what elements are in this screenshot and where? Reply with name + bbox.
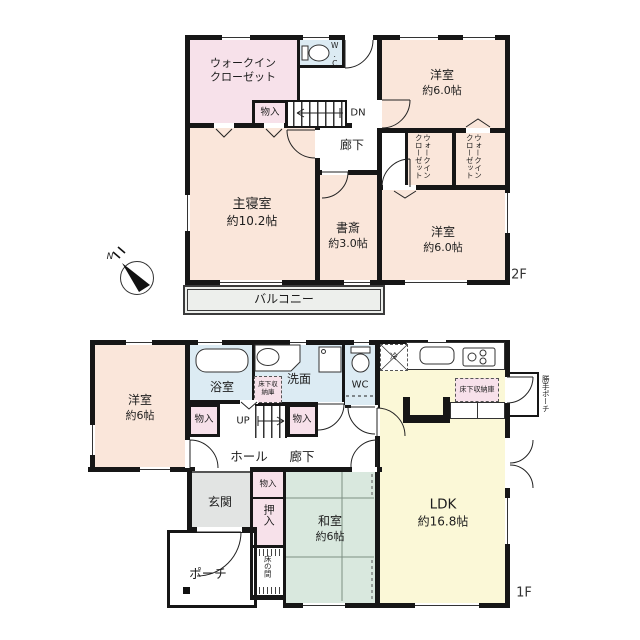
underfloor-storage-label-ldk: 床下収納庫 xyxy=(460,385,495,394)
door-opening xyxy=(352,467,377,472)
window xyxy=(185,195,190,231)
room-label-wc-2f: W.C xyxy=(330,41,338,65)
room-label-senmen-1f: 洗面 xyxy=(287,372,311,388)
room-label-ldk: LDK 約16.8帖 xyxy=(418,496,469,529)
door-arc xyxy=(318,404,344,430)
room-label-walkin-closet-2f: ウォークイン クローゼット xyxy=(210,57,276,86)
kitchen-counter xyxy=(406,342,505,370)
window xyxy=(400,35,438,40)
door-opening xyxy=(377,100,382,128)
kitchen-island-wall xyxy=(403,397,410,423)
door-arc xyxy=(348,407,375,434)
compass-north-label: N xyxy=(107,252,114,264)
room-wc-1f xyxy=(345,345,375,405)
closet-label-monoiri-2f: 物入 xyxy=(260,107,279,119)
window xyxy=(222,35,250,40)
room-label-wic2-2f: ウォークイン クローゼット xyxy=(465,134,482,186)
door-opening xyxy=(264,123,284,128)
kitchen-porch-label: 勝手ポーチ xyxy=(541,375,549,419)
room-label-wc-1f: WC xyxy=(352,379,369,392)
door-opening xyxy=(394,185,416,190)
casement-window-icon xyxy=(510,465,533,488)
room-label-genkan: 玄関 xyxy=(208,495,232,511)
closet-label-monoiri-west: 物入 xyxy=(194,414,213,426)
wall xyxy=(405,128,408,185)
room-label-shosai-2f: 書斎 約3.0帖 xyxy=(328,221,368,251)
wall xyxy=(185,35,190,285)
door-opening xyxy=(197,527,242,532)
window xyxy=(290,340,306,345)
room-label-yoshitsu-south-2f: 洋室 約6.0帖 xyxy=(423,225,463,255)
window xyxy=(354,340,369,345)
closet-label-monoiri-south: 物入 xyxy=(259,479,276,490)
wall xyxy=(342,345,345,405)
room-label-wic1-2f: ウォークイン クローゼット xyxy=(414,134,431,186)
door-opening xyxy=(240,400,258,404)
door-opening xyxy=(185,440,190,468)
genkan-step-line xyxy=(192,471,250,473)
tokonoma-label: 床の間 xyxy=(263,555,271,591)
window xyxy=(303,35,329,40)
door-opening xyxy=(322,170,348,175)
hallway-label-1f: 廊下 xyxy=(289,449,314,465)
wall xyxy=(283,467,286,603)
door-opening xyxy=(214,123,234,128)
window xyxy=(463,35,495,40)
underfloor-storage-label-senmen: 床下収納庫 xyxy=(256,381,280,397)
floor-label-1f: 1F xyxy=(516,586,532,603)
wall xyxy=(250,467,253,600)
wall xyxy=(250,545,286,548)
window xyxy=(405,280,467,285)
room-label-shinshitsu-2f: 主寝室 約10.2帖 xyxy=(227,197,278,229)
closet-label-monoiri-east: 物入 xyxy=(292,414,311,426)
door-opening xyxy=(318,402,344,405)
window xyxy=(428,340,446,345)
door-opening xyxy=(505,377,510,403)
wall xyxy=(452,128,456,185)
wall xyxy=(377,40,382,280)
window xyxy=(126,340,152,345)
porch-label: ポーチ xyxy=(189,566,227,582)
window xyxy=(303,603,345,608)
floor-label-2f: 2F xyxy=(511,268,527,285)
hall-label-1f: ホール xyxy=(230,449,268,465)
room-label-bath-1f: 浴室 xyxy=(210,380,234,396)
window xyxy=(90,425,95,455)
wall xyxy=(505,35,510,285)
wall xyxy=(342,40,345,68)
refrigerator-label: 冷 xyxy=(390,352,398,362)
window xyxy=(505,193,510,233)
floorplan-canvas: ウォークイン クローゼット W.C 物入 DN 廊下 洋室 約6.0帖 ウォーク… xyxy=(0,0,640,640)
wall xyxy=(250,497,286,499)
door-opening xyxy=(375,408,380,436)
door-arc xyxy=(351,440,377,467)
stairs-up-1f xyxy=(255,404,287,438)
closet-label-oshiire: 押入 xyxy=(262,504,274,544)
room-label-yoshitsu-1f: 洋室 約6帖 xyxy=(126,393,155,423)
door-opening xyxy=(315,130,320,158)
window xyxy=(344,280,370,285)
window xyxy=(140,467,170,472)
kitchen-porch xyxy=(505,372,539,417)
window xyxy=(415,603,479,608)
stairs-label-dn: DN xyxy=(350,107,365,120)
casement-window-icon xyxy=(510,440,533,463)
kitchen-island-wall xyxy=(443,397,450,423)
door-opening xyxy=(466,128,490,133)
door-arc xyxy=(190,440,218,468)
door-opening xyxy=(345,35,373,40)
wall xyxy=(297,40,300,103)
window-opening xyxy=(505,438,510,488)
window xyxy=(505,498,510,544)
porch-dot xyxy=(183,587,190,594)
room-label-yoshitsu-north-2f: 洋室 約6.0帖 xyxy=(422,68,462,98)
door-opening xyxy=(351,405,378,408)
wall xyxy=(250,595,286,600)
stairs-label-up: UP xyxy=(236,415,249,428)
door-arc xyxy=(345,40,373,68)
compass-icon xyxy=(113,247,154,295)
hallway-label-2f: 廊下 xyxy=(340,138,364,154)
kitchen-island-counter-divider xyxy=(477,402,478,419)
room-label-washitsu: 和室 約6帖 xyxy=(316,514,345,544)
wall xyxy=(187,467,192,532)
window xyxy=(220,280,282,285)
balcony-label: バルコニー xyxy=(254,292,314,308)
window xyxy=(198,340,222,345)
stairs-down-2f xyxy=(285,100,347,126)
